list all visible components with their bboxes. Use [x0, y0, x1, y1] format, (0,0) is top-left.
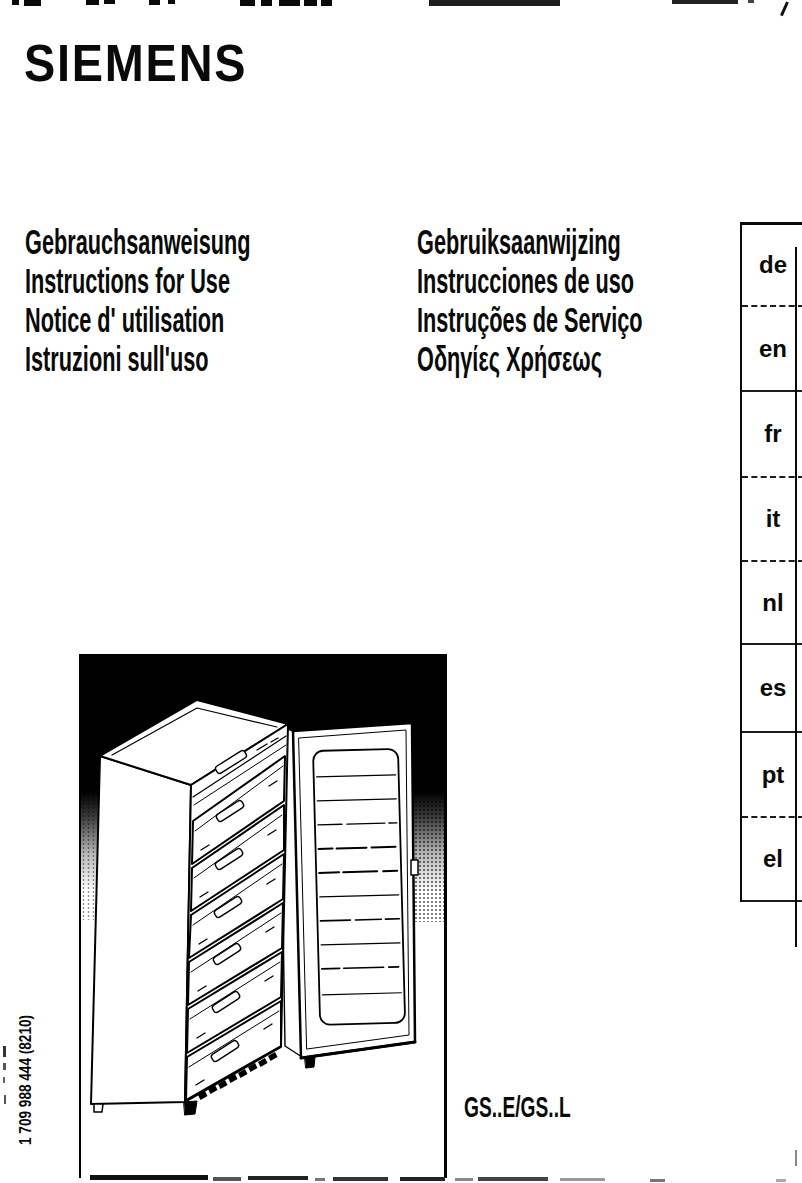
page-right-edge-lower	[795, 1150, 797, 1166]
title-spanish: Instrucciones de uso	[417, 261, 643, 300]
title-dutch: Gebruiksaanwijzing	[417, 222, 643, 261]
page-right-edge	[795, 247, 797, 947]
language-label: it	[766, 505, 781, 533]
language-label: fr	[764, 420, 781, 448]
language-label: en	[759, 335, 787, 363]
language-tab-es: es	[742, 645, 802, 733]
language-tab-el: el	[742, 818, 802, 902]
language-tab-fr: fr	[742, 392, 802, 478]
language-tab-rail: de en fr it nl es pt el	[740, 222, 802, 902]
language-label: el	[763, 845, 783, 873]
title-greek: Οδηγίες Χρήσεως	[417, 339, 643, 378]
freezer-line-art	[81, 654, 444, 1178]
title-english: Instructions for Use	[25, 261, 251, 300]
scan-artifact-backslash	[780, 1, 789, 16]
title-german: Gebrauchsanweisung	[25, 222, 251, 261]
language-tab-en: en	[742, 307, 802, 392]
part-number-vertical: 1 709 988 444 (8210)	[16, 1015, 36, 1145]
freezer-illustration	[79, 654, 447, 1178]
model-label: GS..E/GS..L	[464, 1090, 571, 1124]
language-tab-pt: pt	[742, 733, 802, 818]
language-tab-de: de	[742, 225, 802, 307]
siemens-logo: SIEMENS	[24, 33, 247, 93]
title-column-left: Gebrauchsanweisung Instructions for Use …	[25, 222, 389, 378]
title-column-right: Gebruiksaanwijzing Instrucciones de uso …	[417, 222, 781, 378]
language-tab-it: it	[742, 478, 802, 562]
language-label: es	[760, 674, 787, 702]
title-italian: Istruzioni sull'uso	[25, 339, 251, 378]
title-french: Notice d' utilisation	[25, 300, 251, 339]
title-portuguese: Instruções de Serviço	[417, 300, 643, 339]
language-label: pt	[762, 761, 785, 789]
language-label: de	[759, 251, 787, 279]
language-label: nl	[762, 589, 783, 617]
language-tab-nl: nl	[742, 562, 802, 645]
